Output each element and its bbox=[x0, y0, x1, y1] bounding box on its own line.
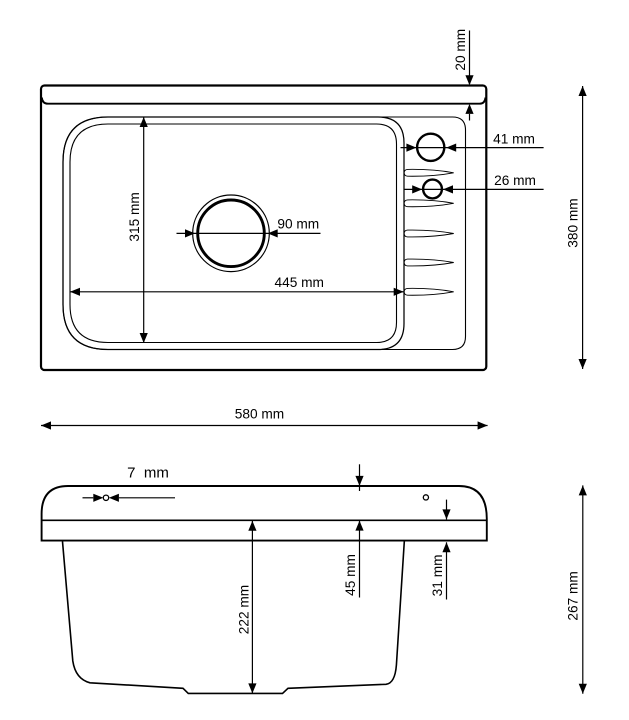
svg-text:20 mm: 20 mm bbox=[453, 29, 468, 71]
svg-text:90 mm: 90 mm bbox=[277, 216, 319, 231]
svg-text:222 mm: 222 mm bbox=[237, 585, 252, 634]
svg-text:380 mm: 380 mm bbox=[566, 198, 581, 247]
svg-text:580 mm: 580 mm bbox=[235, 407, 284, 422]
svg-text:31 mm: 31 mm bbox=[430, 554, 445, 596]
svg-text:26 mm: 26 mm bbox=[494, 173, 536, 188]
svg-text:7 mm: 7 mm bbox=[127, 465, 169, 482]
svg-text:41 mm: 41 mm bbox=[493, 132, 535, 147]
svg-text:45 mm: 45 mm bbox=[343, 554, 358, 596]
svg-text:267 mm: 267 mm bbox=[566, 571, 581, 620]
svg-text:445 mm: 445 mm bbox=[274, 275, 323, 290]
svg-text:315 mm: 315 mm bbox=[127, 192, 142, 241]
